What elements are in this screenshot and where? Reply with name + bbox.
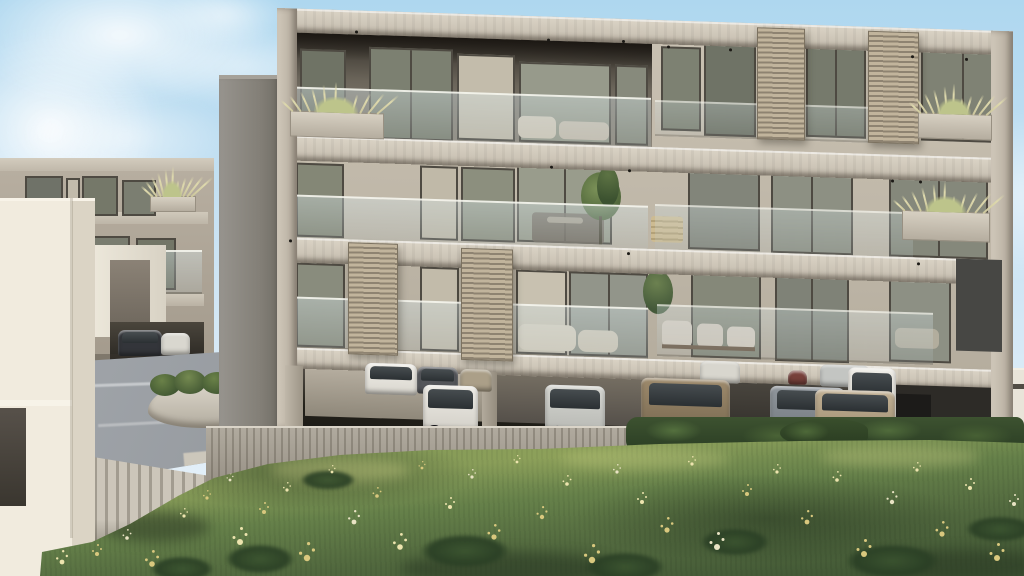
window <box>296 163 344 239</box>
flower <box>890 500 894 504</box>
undercroft-parking <box>110 322 204 360</box>
window <box>704 44 756 138</box>
sun-glow <box>0 30 160 230</box>
loggia-sofa <box>518 116 556 139</box>
pampas-planter <box>918 112 992 140</box>
street-layer <box>0 0 1024 576</box>
window <box>771 173 853 256</box>
window <box>461 167 515 243</box>
downlight <box>729 48 732 51</box>
parapet-ledge <box>0 400 72 406</box>
shrub <box>150 556 214 576</box>
balcony-planter <box>150 196 196 212</box>
flower <box>615 470 618 473</box>
armchair <box>697 323 723 348</box>
car-dark-suv <box>417 366 458 394</box>
downlight <box>622 40 625 43</box>
flower <box>714 544 720 550</box>
curtain-window <box>66 178 80 214</box>
downlight <box>550 166 553 169</box>
window <box>296 263 345 349</box>
window <box>25 176 63 214</box>
downlight <box>547 39 550 42</box>
car-grey-suv <box>770 386 845 433</box>
downlight <box>919 180 922 183</box>
car-white-suv-front <box>423 385 478 432</box>
flower <box>589 557 595 563</box>
downlight <box>289 239 292 242</box>
window <box>615 65 648 146</box>
window <box>661 46 701 131</box>
curb-line <box>88 376 338 388</box>
parked-car-white <box>161 333 190 355</box>
flower <box>915 468 918 471</box>
car-champagne-sedan <box>815 389 895 433</box>
dark-corner-panel <box>956 259 1002 352</box>
window <box>889 275 951 363</box>
roof-fascia <box>277 8 1013 55</box>
lounge-sofa <box>518 324 576 352</box>
loggia-ceiling-shadow <box>295 31 652 70</box>
dry-grass-patch <box>270 458 410 482</box>
slat-fence-left <box>86 452 216 548</box>
downlight <box>628 169 631 172</box>
flower <box>640 500 644 504</box>
window <box>517 164 612 245</box>
walkway <box>183 439 346 477</box>
balcony-glass-railing <box>295 87 651 150</box>
corner-pier-right <box>991 31 1013 456</box>
window <box>688 169 760 251</box>
louvre-shutter <box>868 31 919 145</box>
left-building <box>0 150 218 396</box>
parking-backwall-lit <box>305 368 485 422</box>
balcony-glass-railing <box>655 100 913 144</box>
window <box>82 236 130 290</box>
interior-sofa <box>895 328 939 349</box>
flower <box>229 479 232 482</box>
corner-pier-left <box>277 8 297 429</box>
distant-wall <box>995 368 1024 440</box>
curb-line <box>98 412 334 427</box>
grass-layer <box>0 0 1024 576</box>
downlight <box>911 55 914 58</box>
flower <box>690 462 693 465</box>
window <box>569 271 648 358</box>
dry-grass-patch <box>560 448 730 470</box>
balcony-glass-railing <box>282 194 648 252</box>
shrub <box>845 544 940 576</box>
cloud <box>0 0 270 110</box>
downlight <box>917 262 920 265</box>
hanging-plant <box>597 166 619 207</box>
flower <box>205 496 208 499</box>
pampas-grass <box>904 177 986 214</box>
top-loggia-interior <box>295 31 652 148</box>
flower <box>125 536 129 540</box>
car-white-estate <box>700 360 740 383</box>
pampas-grass <box>292 77 380 114</box>
louvre-shutter <box>757 27 805 141</box>
downlight <box>667 45 670 48</box>
loggia-sofa <box>559 121 609 141</box>
cloud <box>160 0 290 45</box>
window <box>26 234 64 290</box>
cloud <box>986 110 1024 280</box>
downlight <box>891 180 894 183</box>
window <box>775 271 849 363</box>
shrub <box>225 544 295 574</box>
lounge-sofa <box>578 330 618 353</box>
flower <box>285 488 288 491</box>
car-silver-estate <box>820 364 870 388</box>
car-white-suv-rear <box>365 363 417 396</box>
dark-opening <box>0 408 26 506</box>
flower <box>565 482 569 486</box>
window <box>889 177 988 259</box>
curved-planter <box>148 384 252 428</box>
car-champagne-sedan <box>815 389 895 433</box>
flower <box>352 520 357 525</box>
window <box>136 238 176 290</box>
parked-car-dark <box>118 330 162 356</box>
scene <box>0 0 1024 576</box>
left-building-wall <box>0 160 214 368</box>
flower <box>835 478 839 482</box>
cloud <box>30 150 200 225</box>
parking-backwall-dark <box>675 378 865 436</box>
curtain-window <box>420 166 458 241</box>
entrance-portal <box>94 245 166 337</box>
flower <box>775 470 778 473</box>
dining-set <box>532 212 604 244</box>
parking-interior <box>277 365 1013 455</box>
dining-table-top <box>547 217 583 224</box>
louvre-shutter <box>461 248 513 362</box>
car-maroon <box>788 370 807 385</box>
white-building <box>0 198 95 576</box>
flower <box>95 552 99 556</box>
window <box>82 176 118 216</box>
armchair <box>662 320 692 347</box>
ground-shadow <box>0 354 210 363</box>
curtain-window <box>457 54 515 142</box>
shrub-green <box>202 372 232 394</box>
left-building-roof-slab <box>0 158 214 171</box>
window <box>691 269 761 359</box>
curtain-window <box>420 267 459 352</box>
balcony-glass-railing <box>655 204 913 260</box>
car-white-suv-rear <box>365 363 417 396</box>
parking-core-door <box>891 394 931 453</box>
flower <box>968 486 972 490</box>
potted-plant-foliage <box>643 270 673 315</box>
wicker-basket <box>651 216 683 243</box>
flower <box>1012 502 1016 506</box>
potted-plant-trunk <box>599 216 602 244</box>
vine <box>780 419 868 447</box>
window <box>300 49 346 136</box>
shrub <box>300 470 356 490</box>
potted-plant-foliage <box>581 172 621 221</box>
dry-grass-patch <box>820 446 980 468</box>
shrub <box>420 534 510 568</box>
armchair <box>727 326 755 349</box>
left-building-slab <box>0 294 204 306</box>
flower <box>994 555 1000 561</box>
pampas-grass <box>152 163 192 197</box>
floor-slab <box>277 237 1013 285</box>
window <box>806 43 866 139</box>
hedge <box>626 417 1024 451</box>
flower <box>60 560 65 565</box>
distant-fence-line <box>995 384 1024 389</box>
window <box>122 180 156 216</box>
car-bronze-suv <box>641 378 730 433</box>
parking-column <box>482 372 497 438</box>
shrub <box>700 528 770 556</box>
flower <box>331 471 334 474</box>
shrub-green <box>174 370 206 394</box>
car-silver-suv-front <box>545 385 605 433</box>
downlight <box>965 58 968 61</box>
flower <box>448 505 452 509</box>
flower <box>805 520 810 525</box>
main-facade <box>277 8 1013 455</box>
left-building-slab <box>0 212 208 224</box>
flower <box>470 475 473 478</box>
car-white-tall-suv <box>848 367 896 422</box>
downlight <box>355 30 358 33</box>
parking-column <box>654 377 670 444</box>
flower <box>516 461 519 464</box>
cloud <box>20 90 230 185</box>
flower <box>939 531 944 536</box>
chair-frames <box>662 344 755 351</box>
flower <box>237 539 243 545</box>
car-beige <box>460 369 492 392</box>
shrub-green <box>150 374 180 396</box>
curtain-window <box>516 270 567 356</box>
slat-fence-main <box>206 426 1024 512</box>
stair-core-tower <box>219 75 282 432</box>
flower <box>491 534 496 539</box>
window <box>921 46 1005 143</box>
flower <box>304 555 310 561</box>
cloud <box>130 25 360 110</box>
louvre-shutter <box>348 242 398 356</box>
pampas-planter <box>902 210 990 243</box>
flower <box>375 494 379 498</box>
parking-backwall-mid <box>485 372 675 428</box>
sky-layer <box>0 0 1024 576</box>
downlight <box>627 252 630 255</box>
flower <box>540 515 544 519</box>
flower <box>664 527 669 532</box>
parking-column <box>285 365 303 432</box>
flower <box>397 544 403 550</box>
balcony-glass-railing <box>20 250 202 294</box>
shrub <box>965 516 1024 542</box>
parking-core-wall <box>863 384 991 455</box>
balcony-glass-railing <box>282 296 648 360</box>
flower <box>421 467 424 470</box>
entrance-opening <box>110 260 150 337</box>
shrub-green <box>226 377 250 395</box>
shrub-green <box>174 370 206 394</box>
flower <box>745 492 749 496</box>
corner-shade <box>70 198 73 538</box>
window <box>519 62 611 145</box>
shadow-patch <box>860 550 1024 576</box>
floor-slab <box>277 347 1013 391</box>
shadow-patch <box>400 552 620 576</box>
flower <box>149 561 155 567</box>
flower <box>262 510 266 514</box>
flower <box>861 551 867 557</box>
floor-slab <box>277 135 1013 183</box>
balcony-glass-railing <box>657 304 933 365</box>
pampas-grass <box>920 79 988 115</box>
shrub <box>585 552 665 576</box>
shadow-patch <box>100 512 210 542</box>
window <box>369 47 453 142</box>
flower <box>182 514 185 517</box>
pampas-planter <box>290 110 384 139</box>
